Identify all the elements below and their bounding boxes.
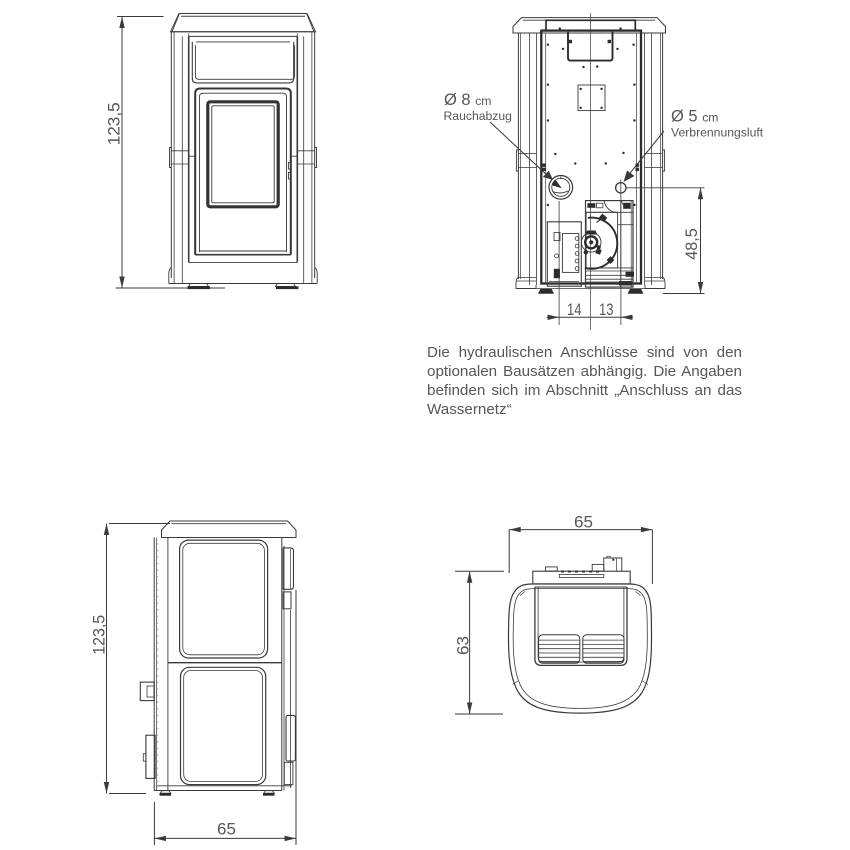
svg-text:Ø 5 cm: Ø 5 cm [671,108,718,126]
svg-text:65: 65 [217,819,236,838]
svg-text:123,5: 123,5 [90,615,109,655]
svg-text:65: 65 [574,513,593,532]
svg-text:123,5: 123,5 [105,102,124,145]
svg-text:48,5: 48,5 [682,228,701,260]
svg-text:14: 14 [567,300,582,319]
svg-text:Ø 8 cm: Ø 8 cm [444,91,491,109]
svg-text:13: 13 [599,300,614,319]
svg-text:Rauchabzug: Rauchabzug [444,109,512,123]
svg-text:63: 63 [453,636,472,655]
svg-text:Verbrennungsluft: Verbrennungsluft [671,126,764,140]
